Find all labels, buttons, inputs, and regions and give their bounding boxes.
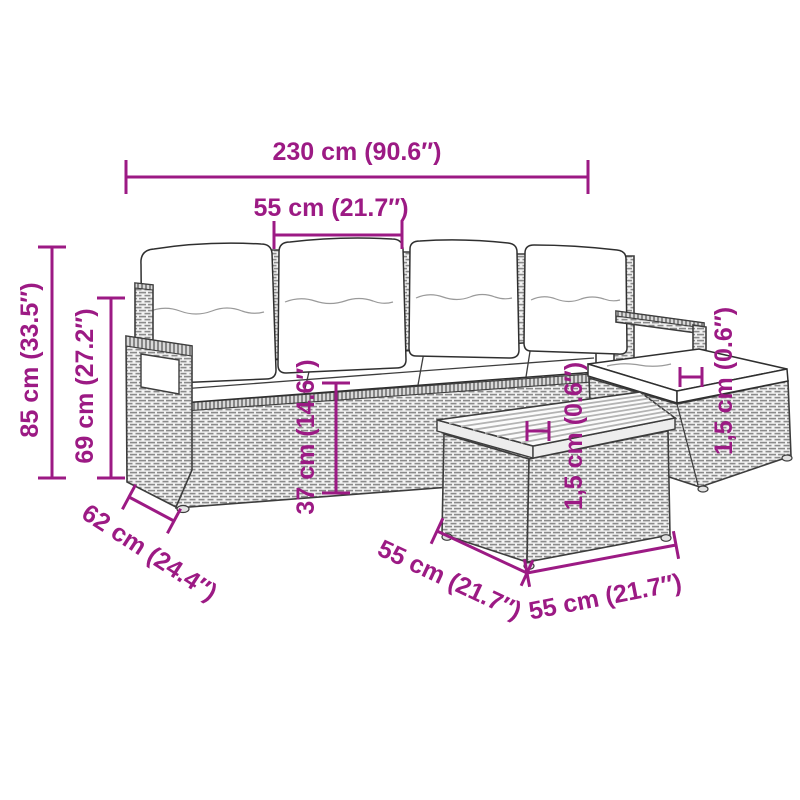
dimension-label-seat-width: 55 cm (21.7″) [253,194,408,222]
dim-overall-height: 85 cm (33.5″) [16,247,66,478]
dimension-label-overall-width: 230 cm (90.6″) [272,138,441,166]
dimension-label-table-width: 55 cm (21.7″) [526,568,684,625]
dimension-label-armrest-height: 69 cm (27.2″) [71,308,99,463]
dimension-label-table-top-thickness: 1,5 cm (0.6″) [560,362,588,510]
diagram-canvas: 230 cm (90.6″) 55 cm (21.7″) 85 cm (33.5… [0,0,800,800]
dimension-label-ottoman-thickness: 1,5 cm (0.6″) [710,307,738,455]
product-dimension-diagram: 230 cm (90.6″) 55 cm (21.7″) 85 cm (33.5… [0,0,800,800]
dimension-label-seat-height: 37 cm (14.6″) [292,359,320,514]
dim-overall-width: 230 cm (90.6″) [126,138,588,194]
dimension-label-seat-depth: 62 cm (24.4″) [77,499,222,607]
dim-armrest-height: 69 cm (27.2″) [71,298,125,478]
coffee-table [437,392,675,569]
dimension-label-overall-height: 85 cm (33.5″) [16,282,44,437]
garden-sofa-set-illustration [126,238,792,569]
